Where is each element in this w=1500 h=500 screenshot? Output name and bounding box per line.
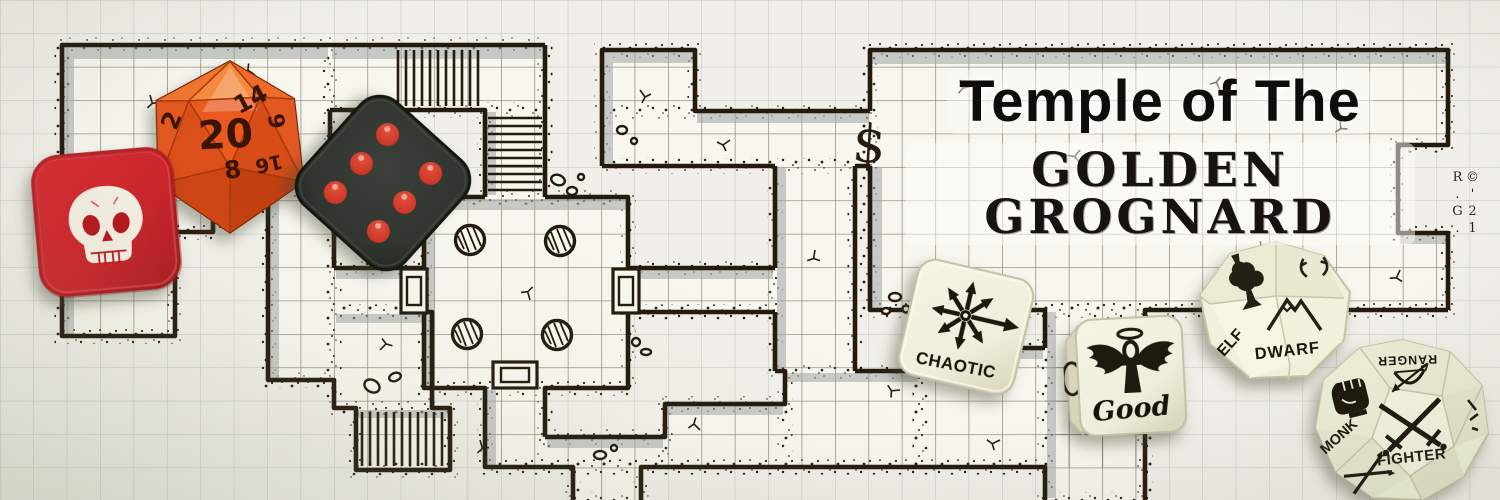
banner-photo: $ 20 14 2 8 (0, 0, 1500, 500)
ranger-label: RANGER (1377, 352, 1438, 368)
west-door (401, 269, 427, 313)
good-d6-die: Good (1061, 311, 1191, 441)
title-block: Temple of The GOLDEN GROGNARD (905, 70, 1415, 245)
copyright-mark: ©'21 R.G. (1450, 170, 1480, 300)
south-door (493, 362, 537, 388)
east-door (613, 269, 639, 313)
red-skull-d6-die (24, 140, 189, 305)
class-die: FIGHTER MONK RANGER (1310, 336, 1492, 500)
title-text-top: Temple of The (947, 70, 1373, 134)
treasure-symbol: $ (851, 114, 888, 176)
title-line-1: Temple of The (905, 70, 1415, 134)
title-line-2: GOLDEN GROGNARD (905, 143, 1415, 245)
title-text-bottom: GOLDEN GROGNARD (905, 143, 1415, 245)
